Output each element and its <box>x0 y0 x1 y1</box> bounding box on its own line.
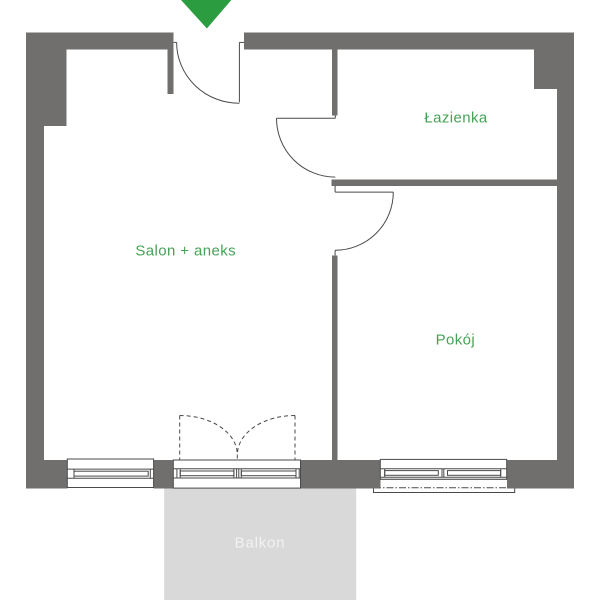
svg-text:Pokój: Pokój <box>436 332 476 349</box>
svg-text:Balkon: Balkon <box>235 535 286 552</box>
svg-text:Salon + aneks: Salon + aneks <box>135 243 236 260</box>
svg-text:Łazienka: Łazienka <box>424 109 488 126</box>
